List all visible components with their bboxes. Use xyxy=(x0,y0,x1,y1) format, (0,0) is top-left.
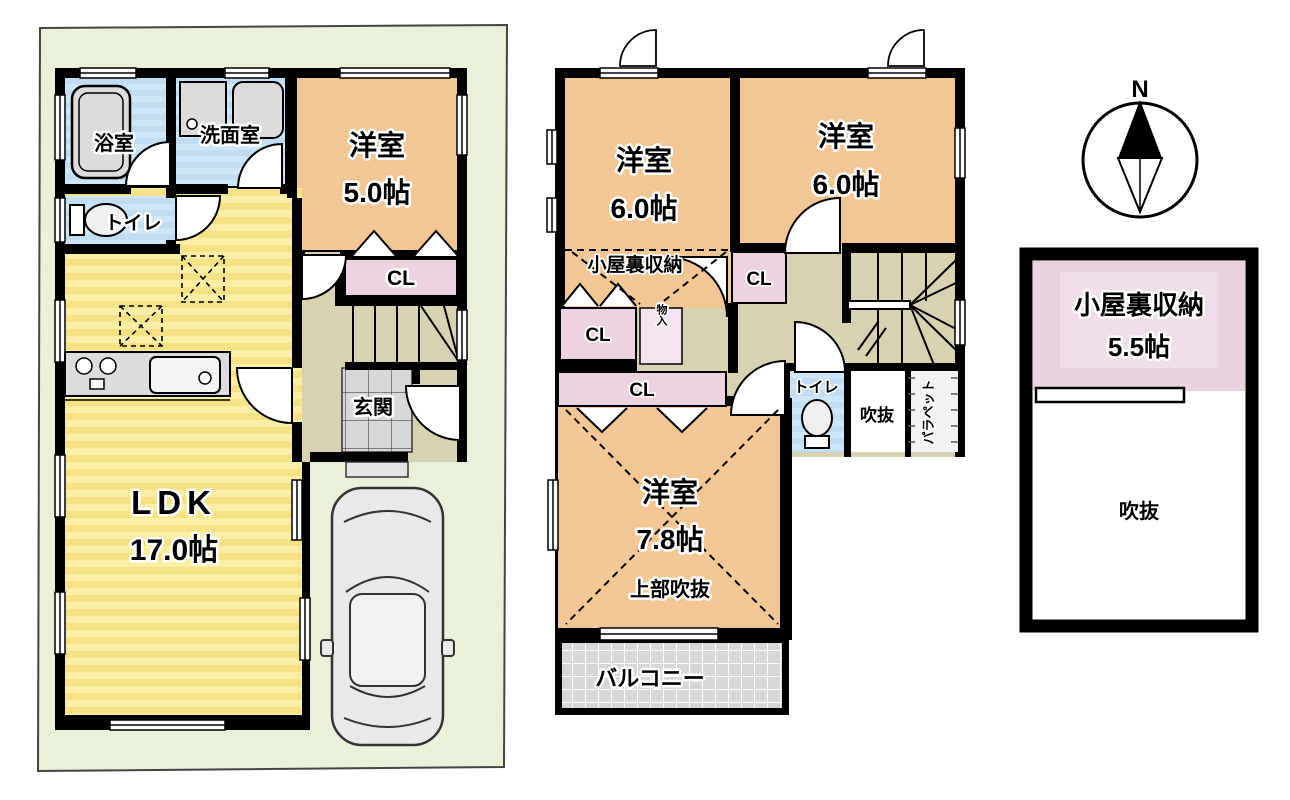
floor2-plan: 洋室 6.0帖 洋室 6.0帖 小屋裏収納 CL CL CL 物入 トイレ 吹抜… xyxy=(547,30,965,715)
label-western-6l: 洋室 xyxy=(616,144,672,176)
label-ldk-size: 17.0帖 xyxy=(130,534,218,567)
label-western-78: 洋室 xyxy=(642,476,698,508)
casement-marks-floor2 xyxy=(620,30,924,66)
entrance-porch-step xyxy=(346,462,408,477)
room-western-6-right xyxy=(740,78,955,245)
toilet-icon-2f xyxy=(802,400,832,448)
label-toilet-1f: トイレ xyxy=(104,213,161,234)
label-storage-small: 物入 xyxy=(655,303,668,327)
label-attic-note: 小屋裏収納 xyxy=(587,253,682,276)
room-western-5 xyxy=(297,78,457,250)
label-void-2f: 吹抜 xyxy=(860,405,895,425)
label-ldk: LDK xyxy=(131,484,217,521)
room-ldk xyxy=(65,188,302,715)
floor-plan-page: 浴室 洗面室 トイレ 洋室 5.0帖 CL LDK 17.0帖 玄関 xyxy=(0,0,1290,800)
label-closet-1f: CL xyxy=(387,267,415,290)
label-closet-long: CL xyxy=(629,380,655,401)
label-closet-left: CL xyxy=(585,325,611,346)
car-icon xyxy=(321,488,454,745)
label-western-5: 洋室 xyxy=(349,129,405,161)
label-western-6r: 洋室 xyxy=(818,120,874,152)
label-western-6r-size: 6.0帖 xyxy=(813,169,880,200)
label-bath: 浴室 xyxy=(94,131,134,155)
attic-opening-bar xyxy=(1036,388,1184,402)
label-attic-storage: 小屋裏収納 xyxy=(1074,290,1204,320)
label-washroom: 洗面室 xyxy=(200,123,260,147)
attic-plan: 小屋裏収納 5.5帖 吹抜 xyxy=(1026,254,1252,626)
label-balcony: バルコニー xyxy=(595,666,705,691)
floor-plan-svg: 浴室 洗面室 トイレ 洋室 5.0帖 CL LDK 17.0帖 玄関 xyxy=(0,0,1290,800)
label-attic-void: 吹抜 xyxy=(1119,499,1160,523)
compass: N xyxy=(1083,76,1197,217)
compass-north-label: N xyxy=(1131,76,1148,103)
label-western-6l-size: 6.0帖 xyxy=(611,193,678,224)
label-western-5-size: 5.0帖 xyxy=(344,177,411,208)
label-toilet-2f: トイレ xyxy=(793,379,838,396)
label-attic-storage-size: 5.5帖 xyxy=(1108,332,1170,362)
floor1-plan: 浴室 洗面室 トイレ 洋室 5.0帖 CL LDK 17.0帖 玄関 xyxy=(55,68,467,745)
label-parapet: パラペット xyxy=(921,379,936,444)
bathtub-icon xyxy=(72,86,130,178)
label-entrance: 玄関 xyxy=(353,395,393,419)
label-western-78-size: 7.8帖 xyxy=(637,524,704,555)
kitchen-counter-icon xyxy=(65,352,230,400)
label-upper-void: 上部吹抜 xyxy=(630,577,711,601)
label-closet-upper: CL xyxy=(746,269,772,290)
